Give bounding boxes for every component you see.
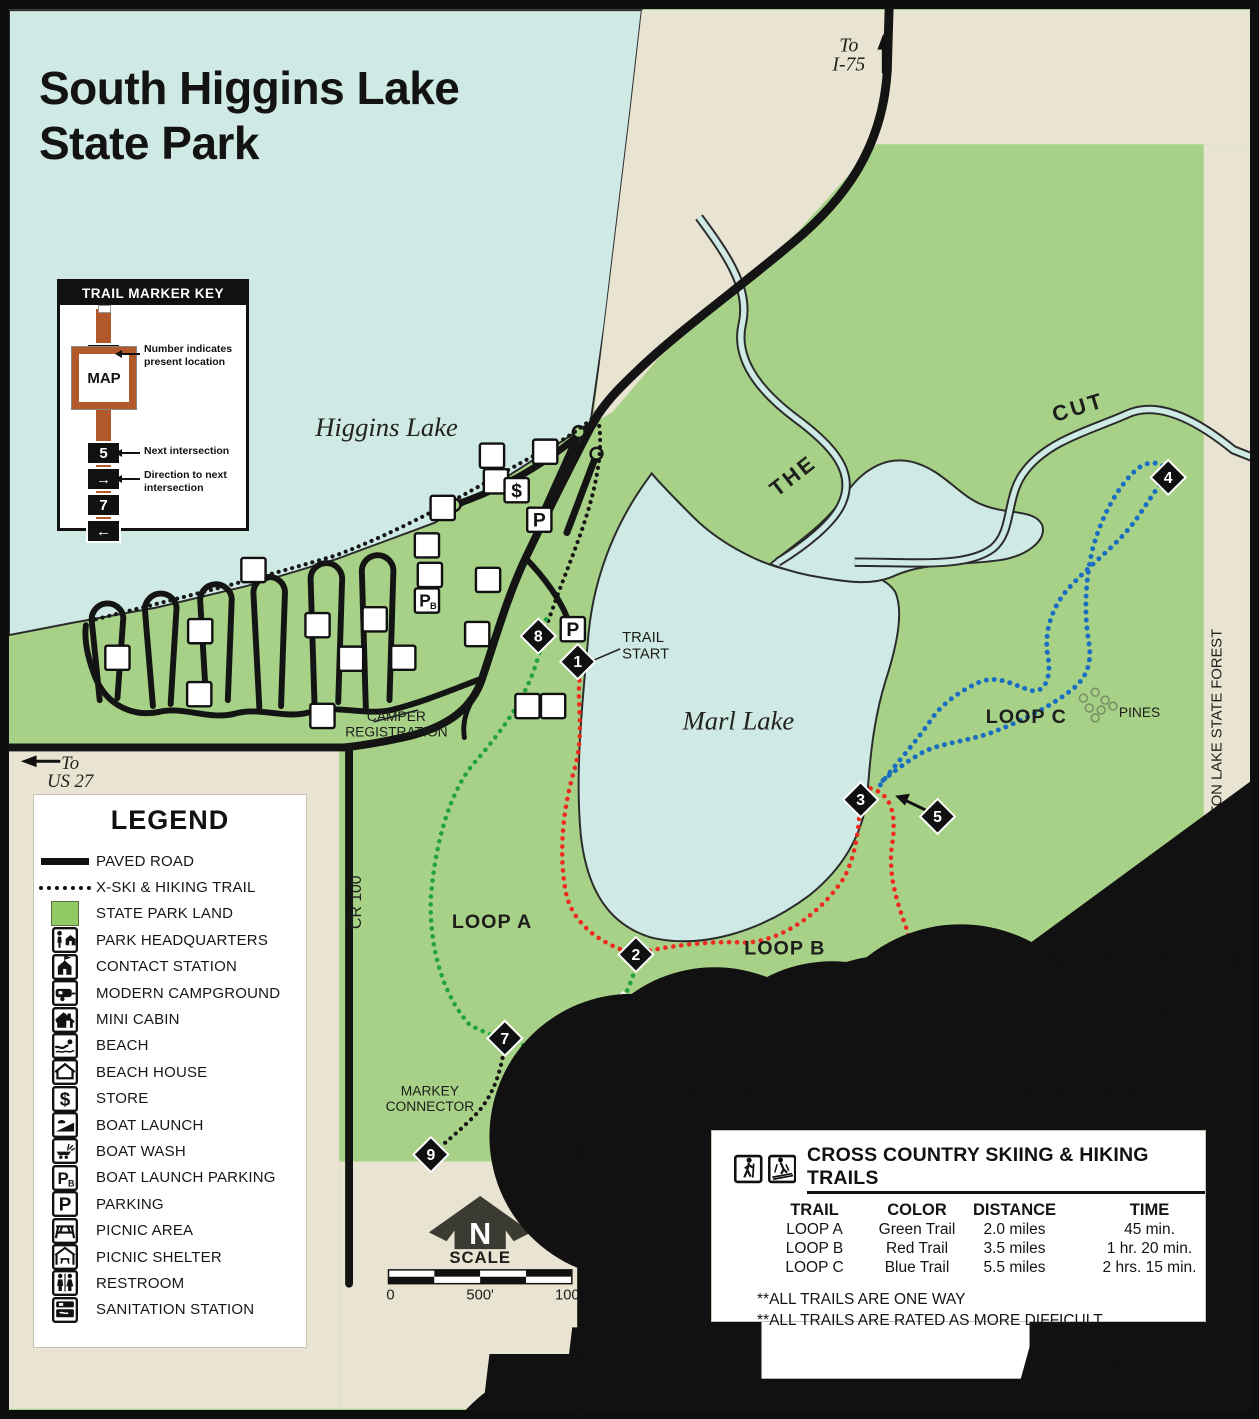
legend-label: PARK HEADQUARTERS — [96, 932, 268, 949]
legend-item-picnic-area: PICNIC AREA — [34, 1217, 306, 1243]
legend-item-boat-wash: BOAT WASH — [34, 1138, 306, 1164]
legend-icon-contact-station-icon — [34, 954, 96, 980]
left-arrow-icon: ← — [86, 519, 121, 543]
map-label-scale-500: 500' — [466, 1287, 494, 1303]
legend-icon-restroom-icon — [34, 1270, 96, 1296]
legend-label: RESTROOM — [96, 1275, 184, 1292]
svg-text:B: B — [430, 601, 437, 611]
legend-label: STORE — [96, 1090, 148, 1107]
marker-number-square: 7 — [86, 493, 121, 517]
legend-items: PAVED ROADX-SKI & HIKING TRAILSTATE PARK… — [34, 848, 306, 1323]
svg-text:B: B — [68, 1178, 75, 1188]
legend-panel: LEGEND PAVED ROADX-SKI & HIKING TRAILSTA… — [34, 795, 306, 1347]
column-header: COLOR — [887, 1201, 947, 1220]
table-cell: 2.0 miles — [983, 1221, 1045, 1239]
legend-label: MINI CABIN — [96, 1011, 180, 1028]
legend-item-beach: BEACH — [34, 1033, 306, 1059]
legend-label: PICNIC AREA — [96, 1222, 193, 1239]
legend-label: X-SKI & HIKING TRAIL — [96, 879, 256, 896]
legend-item-paved-road: PAVED ROAD — [34, 848, 306, 874]
top-tan-region — [593, 10, 1250, 424]
trails-table-notes: **ALL TRAILS ARE ONE WAY **ALL TRAILS AR… — [757, 1289, 1205, 1331]
svg-text:8: 8 — [534, 629, 543, 646]
legend-icon-mini-cabin-icon — [34, 1007, 96, 1033]
trails-table-title-row: CROSS COUNTRY SKIING & HIKING TRAILS — [734, 1144, 1205, 1194]
svg-text:$: $ — [60, 1088, 71, 1109]
annotation-arrow-icon — [118, 452, 140, 454]
svg-text:2: 2 — [632, 947, 641, 964]
legend-title: LEGEND — [34, 805, 306, 836]
table-cell: Blue Trail — [885, 1259, 950, 1277]
legend-icon-boat-wash-icon — [34, 1138, 96, 1164]
legend-label: PICNIC SHELTER — [96, 1249, 222, 1266]
legend-label: MODERN CAMPGROUND — [96, 985, 280, 1002]
annotation-arrow-icon — [118, 478, 140, 480]
legend-item-modern-campground: MODERN CAMPGROUND — [34, 980, 306, 1006]
map-label-the: THE — [765, 449, 822, 501]
table-cell: Green Trail — [879, 1221, 956, 1239]
legend-label: STATE PARK LAND — [96, 905, 233, 922]
annotation-line: Direction to next — [144, 469, 227, 482]
legend-icon-beach-icon — [34, 1033, 96, 1059]
legend-item-parking: PPARKING — [34, 1191, 306, 1217]
legend-icon-modern-campground-icon — [34, 980, 96, 1006]
legend-label: SANITATION STATION — [96, 1301, 254, 1318]
legend-icon-picnic-shelter-icon — [34, 1244, 96, 1270]
table-cell: LOOP A — [786, 1221, 843, 1239]
svg-text:1: 1 — [573, 654, 582, 671]
store-icon: $ — [505, 478, 529, 502]
parking-icon: P — [561, 617, 585, 641]
legend-icon-park-land — [34, 901, 96, 926]
page-title-line1: South Higgins Lake — [39, 61, 459, 116]
annotation-line: Number indicates — [144, 343, 232, 356]
key-annotation: Number indicates present location — [144, 343, 232, 368]
map-label-scale: SCALE — [449, 1248, 511, 1267]
annotation-line: intersection — [144, 482, 227, 495]
legend-label: BEACH HOUSE — [96, 1064, 207, 1081]
column-header: DISTANCE — [973, 1201, 1056, 1220]
trails-table-panel: CROSS COUNTRY SKIING & HIKING TRAILS TRA… — [712, 1131, 1205, 1321]
column-header: TIME — [1130, 1201, 1169, 1220]
trails-table-title: CROSS COUNTRY SKIING & HIKING TRAILS — [807, 1144, 1205, 1194]
svg-text:3: 3 — [856, 792, 865, 809]
legend-icon-beach-house-icon — [34, 1059, 96, 1085]
legend-item-picnic-shelter: PICNIC SHELTER — [34, 1244, 306, 1270]
legend-item-beach-house: BEACH HOUSE — [34, 1059, 306, 1085]
legend-item-mini-cabin: MINI CABIN — [34, 1006, 306, 1032]
annotation-arrow-icon — [118, 353, 140, 355]
legend-icon-paved-road — [34, 858, 96, 865]
marker-5-arrow — [895, 794, 927, 811]
legend-item-park-land: STATE PARK LAND — [34, 901, 306, 927]
svg-text:P: P — [59, 1194, 72, 1215]
annotation-line: Next intersection — [144, 445, 229, 458]
legend-item-boat-launch: BOAT LAUNCH — [34, 1112, 306, 1138]
legend-item-store: $STORE — [34, 1086, 306, 1112]
boat-launch-parking-icon: PB — [415, 588, 439, 612]
page-title: South Higgins Lake State Park — [39, 61, 459, 171]
legend-icon-park-headquarters-icon — [34, 927, 96, 953]
page-title-line2: State Park — [39, 116, 459, 171]
svg-text:9: 9 — [426, 1147, 435, 1164]
legend-label: BOAT WASH — [96, 1143, 186, 1160]
legend-icon-store-icon: $ — [34, 1086, 96, 1112]
note-line: **ALL TRAILS ARE ONE WAY — [757, 1289, 1205, 1310]
map-label-scale-0: 0 — [386, 1287, 394, 1303]
legend-icon-xski-trail — [34, 886, 96, 890]
legend-item-boat-launch-parking: PBBOAT LAUNCH PARKING — [34, 1165, 306, 1191]
key-annotation: Next intersection — [144, 445, 229, 458]
legend-item-restroom: RESTROOM — [34, 1270, 306, 1296]
svg-text:4: 4 — [1164, 470, 1173, 487]
legend-item-sanitation-station: SANITATION STATION — [34, 1297, 306, 1323]
svg-text:7: 7 — [500, 1031, 509, 1048]
map-label-cr-100: CR 100 — [348, 875, 365, 929]
table-cell: 3.5 miles — [983, 1240, 1045, 1258]
map-label-higgins-lake: Higgins Lake — [314, 412, 458, 442]
legend-label: BEACH — [96, 1037, 149, 1054]
legend-icon-sanitation-station-icon — [34, 1297, 96, 1323]
legend-item-park-headquarters: PARK HEADQUARTERS — [34, 927, 306, 953]
map-label-loop-b: LOOP B — [744, 937, 825, 959]
legend-label: BOAT LAUNCH PARKING — [96, 1169, 276, 1186]
table-cell: 2 hrs. 15 min. — [1103, 1259, 1197, 1277]
trail-marker-7: 7 — [487, 1021, 522, 1056]
map-label-pines: PINES — [1119, 705, 1160, 720]
map-label-trail-start: TRAILSTART — [622, 630, 669, 663]
map-label-loop-a: LOOP A — [452, 911, 532, 933]
trail-post-cap — [98, 305, 111, 313]
map-label-loop-c: LOOP C — [986, 706, 1067, 728]
scale-bar — [388, 1270, 571, 1284]
legend-label: BOAT LAUNCH — [96, 1117, 204, 1134]
map-label-marl-lake: Marl Lake — [682, 706, 795, 736]
column-header: TRAIL — [790, 1201, 839, 1220]
legend-item-contact-station: CONTACT STATION — [34, 954, 306, 980]
legend-item-xski-trail: X-SKI & HIKING TRAIL — [34, 874, 306, 900]
trail-marker-key-panel: TRAIL MARKER KEY 4 MAP 5 → 7 ← Number in… — [57, 279, 249, 531]
map-label-north: N — [469, 1217, 491, 1251]
svg-text:P: P — [566, 620, 579, 641]
skier-icon — [768, 1154, 797, 1184]
parking-icon: P — [527, 508, 551, 532]
legend-icon-parking-icon: P — [34, 1191, 96, 1217]
legend-label: PARKING — [96, 1196, 164, 1213]
trail-marker-8: 8 — [521, 619, 556, 654]
pines-symbols — [1079, 688, 1116, 722]
svg-text:P: P — [533, 510, 546, 531]
table-cell: LOOP C — [785, 1259, 843, 1277]
map-label-markey-connector: MARKEYCONNECTOR — [386, 1083, 475, 1114]
trail-marker-5: 5 — [920, 799, 955, 834]
legend-icon-picnic-area-icon — [34, 1218, 96, 1244]
note-line: **ALL TRAILS ARE RATED AS MORE DIFFICULT — [757, 1310, 1205, 1331]
svg-text:5: 5 — [933, 809, 942, 826]
park-map-page: ToI-75Higgins LakeMarl LakeTHECUTTRAILST… — [0, 0, 1259, 1419]
trails-table: TRAIL COLOR DISTANCE TIME LOOP A Green T… — [757, 1201, 1205, 1277]
key-annotation: Direction to next intersection — [144, 469, 227, 494]
table-cell: 1 hr. 20 min. — [1107, 1240, 1192, 1258]
legend-icon-boat-launch-parking-icon: PB — [34, 1165, 96, 1191]
hiker-icon — [734, 1154, 763, 1184]
legend-label: CONTACT STATION — [96, 958, 237, 975]
legend-icon-boat-launch-icon — [34, 1112, 96, 1138]
table-cell: 45 min. — [1124, 1221, 1175, 1239]
trail-marker-key-title: TRAIL MARKER KEY — [60, 282, 246, 305]
table-cell: Red Trail — [886, 1240, 948, 1258]
map-sign: MAP — [72, 347, 136, 409]
trail-marker-2: 2 — [618, 937, 653, 972]
annotation-line: present location — [144, 356, 232, 369]
svg-text:$: $ — [511, 481, 522, 502]
table-cell: 5.5 miles — [983, 1259, 1045, 1277]
legend-label: PAVED ROAD — [96, 853, 194, 870]
trail-marker-key-body: 4 MAP 5 → 7 ← Number indicates present l… — [60, 305, 246, 525]
table-cell: LOOP B — [786, 1240, 843, 1258]
